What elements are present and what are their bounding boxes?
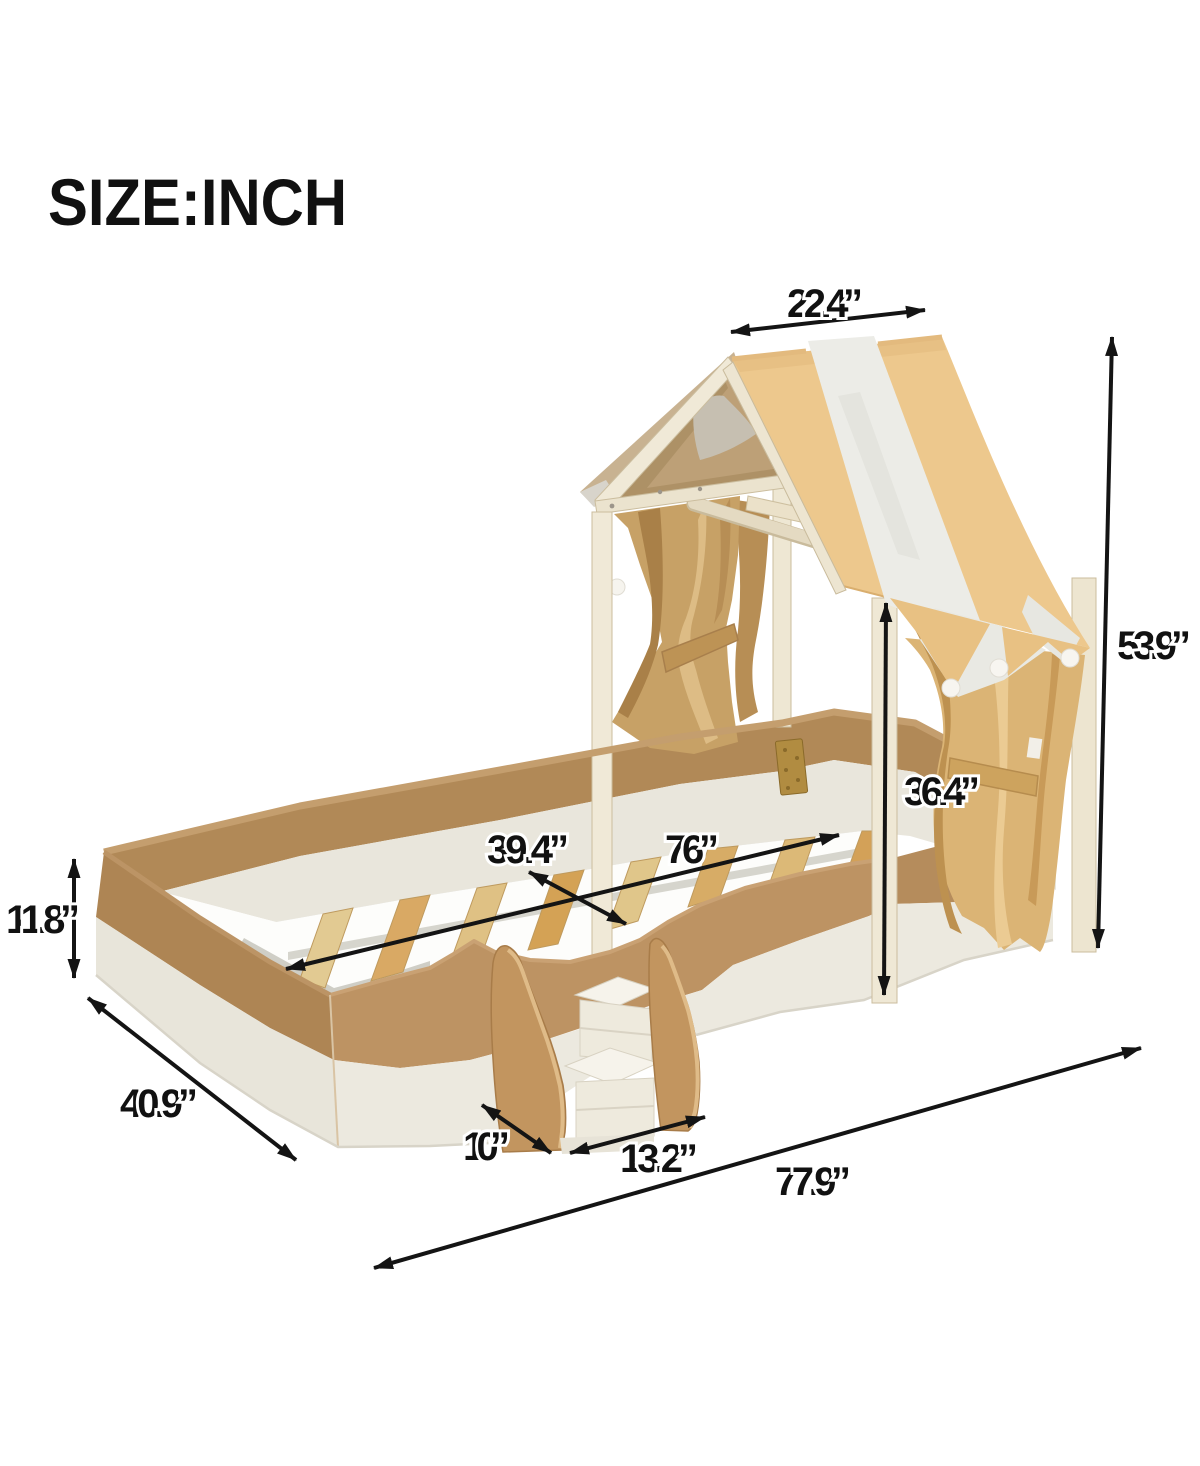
svg-text:10”: 10”	[463, 1125, 510, 1169]
svg-text:39.4”: 39.4”	[487, 828, 569, 872]
svg-text:36.4”: 36.4”	[904, 770, 980, 814]
svg-text:SIZE:INCH: SIZE:INCH	[48, 165, 347, 239]
svg-text:22.4”: 22.4”	[787, 282, 863, 326]
svg-text:77.9”: 77.9”	[775, 1160, 851, 1204]
svg-text:13.2”: 13.2”	[620, 1137, 698, 1181]
svg-text:11.8”: 11.8”	[6, 898, 80, 942]
svg-text:76”: 76”	[665, 828, 719, 872]
svg-text:40.9”: 40.9”	[120, 1082, 198, 1126]
svg-text:53.9”: 53.9”	[1117, 624, 1191, 668]
